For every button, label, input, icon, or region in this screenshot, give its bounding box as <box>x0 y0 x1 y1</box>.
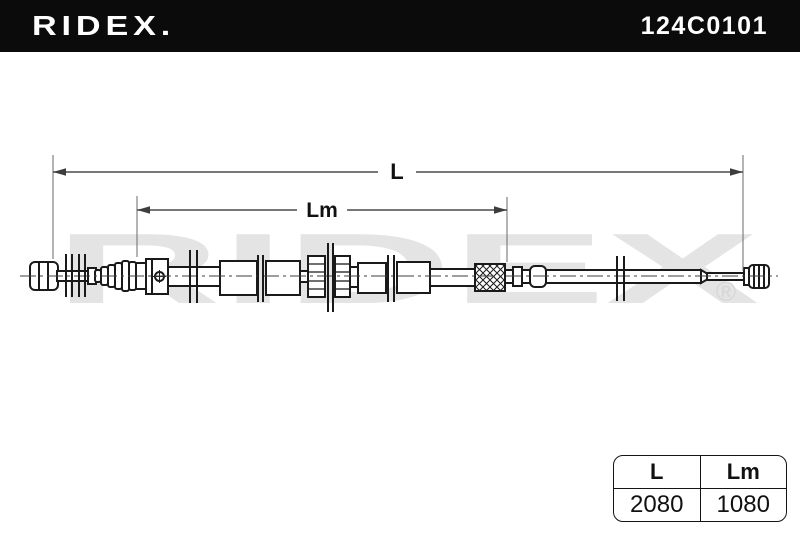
dimension-label-l: L <box>390 159 403 184</box>
cable-diagram: RIDEX ® <box>0 0 800 533</box>
dimension-line-l: L <box>53 159 743 184</box>
table-value-row: 2080 1080 <box>614 489 786 521</box>
table-header-l: L <box>614 456 700 488</box>
sheath-section <box>358 263 386 293</box>
arrow-right-icon <box>730 168 743 176</box>
table-header-lm: Lm <box>700 456 787 488</box>
arrow-left-icon <box>53 168 66 176</box>
dimension-table: L Lm 2080 1080 <box>613 455 787 522</box>
dimension-label-lm: Lm <box>306 199 338 222</box>
sheath-section <box>266 261 300 295</box>
adjuster-knurled <box>475 264 505 291</box>
table-value-lm: 1080 <box>700 489 787 521</box>
sheath-section <box>220 261 257 295</box>
step-ring <box>350 267 358 287</box>
sheath-section <box>397 262 430 293</box>
table-value-l: 2080 <box>614 489 700 521</box>
table-header-row: L Lm <box>614 456 786 489</box>
product-technical-image: RIDEX. 124C0101 RIDEX ® <box>0 0 800 533</box>
outer-tube <box>430 269 475 286</box>
